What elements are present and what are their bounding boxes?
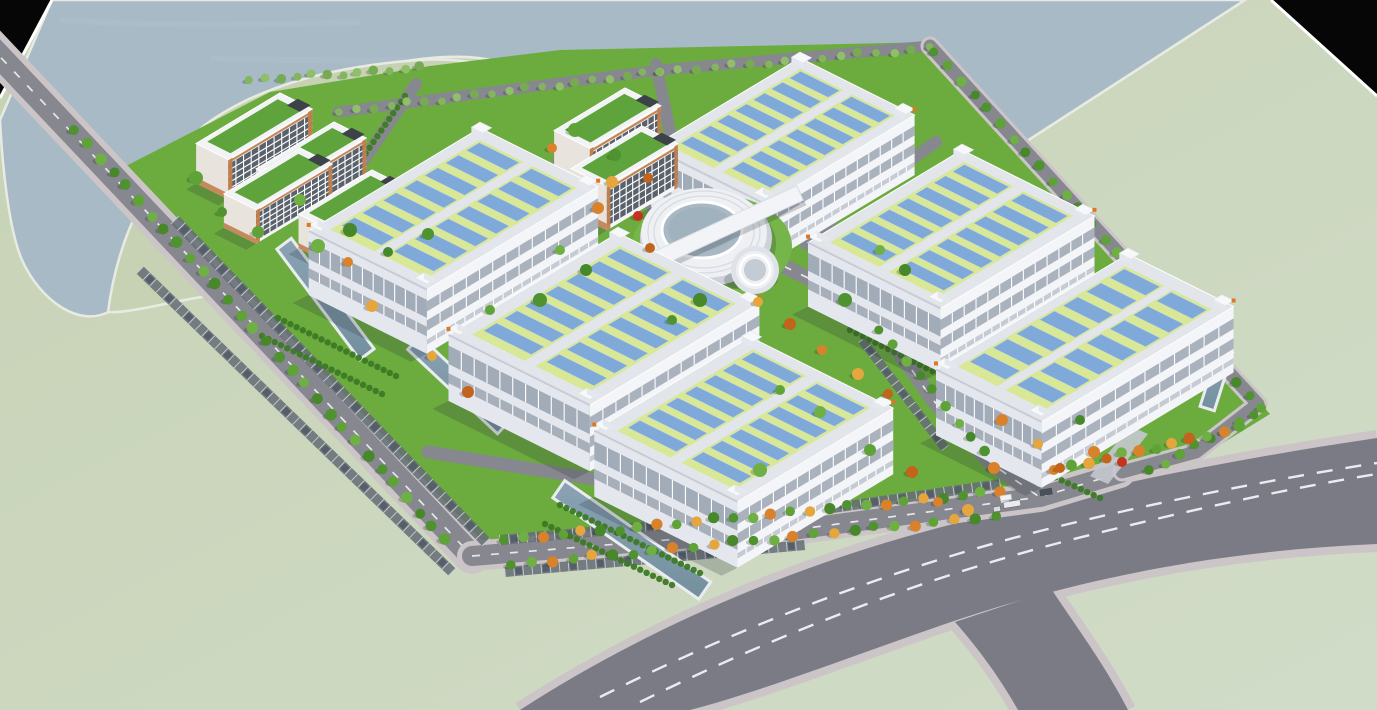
tree bbox=[350, 435, 361, 446]
tree bbox=[414, 61, 424, 71]
tree bbox=[335, 108, 343, 116]
tree bbox=[929, 48, 938, 57]
tree bbox=[940, 401, 951, 412]
tree bbox=[533, 293, 547, 307]
tree bbox=[1246, 391, 1255, 400]
tree bbox=[377, 464, 387, 474]
tree bbox=[595, 525, 606, 536]
tree bbox=[1249, 411, 1258, 420]
tree bbox=[547, 556, 558, 567]
tree bbox=[452, 93, 460, 101]
tower-orange-mark bbox=[446, 327, 450, 331]
tree bbox=[1161, 460, 1170, 469]
tree bbox=[667, 542, 678, 553]
tree bbox=[814, 406, 826, 418]
tower-orange-mark bbox=[1092, 208, 1096, 212]
tree bbox=[1152, 444, 1162, 454]
tree bbox=[261, 336, 271, 346]
tree bbox=[499, 535, 509, 545]
tree bbox=[1101, 235, 1111, 245]
tree bbox=[547, 143, 557, 153]
tree bbox=[1144, 465, 1154, 475]
tree bbox=[299, 377, 309, 387]
tree bbox=[824, 503, 835, 514]
tree bbox=[966, 432, 976, 442]
tree bbox=[711, 63, 719, 71]
tree bbox=[1202, 432, 1212, 442]
tree bbox=[787, 531, 798, 542]
tree bbox=[609, 149, 621, 161]
tree bbox=[307, 69, 316, 78]
tree bbox=[809, 529, 819, 539]
tree bbox=[906, 466, 918, 478]
tree bbox=[842, 500, 852, 510]
tree bbox=[1219, 426, 1230, 437]
tree bbox=[933, 497, 943, 507]
tree bbox=[645, 243, 655, 253]
scene-svg bbox=[0, 0, 1377, 710]
tree bbox=[383, 247, 393, 257]
tree bbox=[651, 519, 662, 530]
tree bbox=[607, 549, 618, 560]
tree bbox=[311, 239, 325, 253]
tree bbox=[592, 202, 604, 214]
tree bbox=[988, 462, 1000, 474]
tree bbox=[462, 386, 474, 398]
tree bbox=[294, 194, 306, 206]
tree bbox=[958, 491, 968, 501]
tree bbox=[906, 45, 915, 54]
tree bbox=[872, 49, 880, 57]
tree bbox=[819, 55, 827, 63]
tree bbox=[69, 125, 79, 135]
tree bbox=[869, 521, 879, 531]
aerial-render-industrial-park bbox=[0, 0, 1377, 710]
tree bbox=[570, 78, 579, 87]
tower-orange-mark bbox=[307, 223, 311, 227]
tree bbox=[673, 65, 681, 73]
tree bbox=[1083, 458, 1095, 470]
tree bbox=[646, 546, 656, 556]
tree bbox=[693, 293, 707, 307]
tree bbox=[171, 236, 183, 248]
tree bbox=[556, 82, 564, 90]
tree bbox=[1049, 177, 1058, 186]
tree bbox=[401, 492, 413, 504]
tree bbox=[639, 68, 647, 76]
tree bbox=[427, 351, 437, 361]
tree bbox=[1183, 433, 1195, 445]
tree bbox=[538, 83, 546, 91]
tree bbox=[1066, 460, 1077, 471]
tree bbox=[401, 65, 410, 74]
tower-orange-mark bbox=[891, 400, 895, 404]
tree bbox=[883, 389, 893, 399]
tree bbox=[709, 539, 719, 549]
tree bbox=[996, 414, 1008, 426]
tree bbox=[588, 76, 596, 84]
tree bbox=[312, 393, 323, 404]
tree bbox=[82, 138, 93, 149]
vehicle bbox=[993, 506, 1001, 512]
tree bbox=[402, 97, 410, 105]
tree bbox=[505, 87, 513, 95]
tree bbox=[775, 385, 785, 395]
tree bbox=[439, 533, 451, 545]
tree bbox=[236, 310, 247, 321]
tree bbox=[784, 318, 796, 330]
tree bbox=[223, 295, 233, 305]
tree bbox=[837, 52, 845, 60]
tree bbox=[343, 257, 353, 267]
tree bbox=[506, 560, 516, 570]
tree bbox=[217, 207, 227, 217]
tree bbox=[955, 419, 964, 428]
tree bbox=[899, 264, 911, 276]
tree bbox=[881, 499, 892, 510]
tree bbox=[927, 384, 937, 394]
tree bbox=[991, 511, 1001, 521]
tree bbox=[415, 509, 425, 519]
tower-orange-mark bbox=[592, 423, 596, 427]
tree bbox=[580, 264, 592, 276]
tree bbox=[729, 513, 739, 523]
tree bbox=[1033, 439, 1043, 449]
tree bbox=[643, 173, 653, 183]
tree bbox=[388, 476, 399, 487]
tree bbox=[353, 68, 362, 77]
tree bbox=[1116, 447, 1127, 458]
tree bbox=[916, 371, 925, 380]
tree bbox=[527, 557, 537, 567]
tree bbox=[120, 179, 131, 190]
tower-orange-mark bbox=[913, 107, 917, 111]
tree bbox=[133, 195, 145, 207]
tree bbox=[862, 500, 872, 510]
tree bbox=[979, 446, 990, 457]
tree bbox=[538, 532, 549, 543]
tree bbox=[569, 554, 579, 564]
tree bbox=[805, 506, 815, 516]
tree bbox=[765, 61, 773, 69]
tree bbox=[575, 525, 585, 535]
tree bbox=[287, 365, 299, 377]
tree bbox=[1233, 420, 1245, 432]
tree bbox=[337, 422, 347, 432]
tree bbox=[294, 73, 302, 81]
tree bbox=[769, 535, 779, 545]
tree bbox=[95, 153, 107, 165]
tree bbox=[1020, 147, 1030, 157]
tree bbox=[970, 513, 981, 524]
tree bbox=[1075, 415, 1085, 425]
tree bbox=[520, 82, 529, 91]
tree bbox=[692, 65, 701, 74]
tree bbox=[838, 293, 852, 307]
tree bbox=[891, 49, 899, 57]
tree bbox=[629, 550, 639, 560]
tree bbox=[667, 315, 677, 325]
tree bbox=[274, 352, 285, 363]
tree bbox=[889, 521, 899, 531]
tree bbox=[852, 368, 864, 380]
tree bbox=[918, 493, 928, 503]
tree bbox=[1102, 454, 1112, 464]
tree bbox=[1117, 457, 1127, 467]
tree bbox=[1055, 463, 1065, 473]
tree bbox=[829, 528, 839, 538]
tree bbox=[1010, 135, 1019, 144]
tree bbox=[158, 224, 169, 235]
tree bbox=[745, 59, 754, 68]
tree bbox=[420, 97, 429, 106]
tree bbox=[749, 536, 759, 546]
tree bbox=[388, 102, 396, 110]
tree bbox=[340, 71, 348, 79]
tree bbox=[708, 512, 719, 523]
tree bbox=[198, 266, 209, 277]
tree bbox=[962, 504, 974, 516]
tree bbox=[943, 60, 953, 70]
tree bbox=[606, 75, 614, 83]
tree bbox=[655, 68, 663, 76]
tree bbox=[689, 543, 699, 553]
tree bbox=[109, 167, 119, 177]
tower-orange-mark bbox=[934, 361, 938, 365]
tree bbox=[623, 72, 632, 81]
tree bbox=[426, 520, 437, 531]
tree bbox=[438, 98, 446, 106]
tree bbox=[956, 76, 967, 87]
tree bbox=[899, 496, 909, 506]
tree bbox=[888, 339, 898, 349]
tree bbox=[910, 521, 921, 532]
tree bbox=[343, 223, 357, 237]
tower-orange-mark bbox=[806, 235, 810, 239]
tree bbox=[1133, 445, 1145, 457]
tree bbox=[518, 532, 528, 542]
tree bbox=[369, 104, 378, 113]
tree bbox=[753, 463, 767, 477]
tree bbox=[147, 212, 157, 222]
tree bbox=[252, 226, 264, 238]
tree bbox=[1088, 446, 1100, 458]
tree bbox=[727, 535, 738, 546]
tree bbox=[874, 326, 883, 335]
tree bbox=[363, 450, 375, 462]
tree bbox=[1175, 449, 1186, 460]
tree bbox=[209, 278, 221, 290]
tree bbox=[632, 522, 642, 532]
tree bbox=[385, 67, 393, 75]
tree bbox=[691, 516, 701, 526]
tree bbox=[352, 105, 360, 113]
tree bbox=[470, 90, 479, 99]
tree bbox=[633, 211, 643, 221]
tree bbox=[672, 520, 682, 530]
tree bbox=[1166, 438, 1177, 449]
tree bbox=[982, 102, 992, 112]
tree bbox=[1256, 403, 1266, 413]
tree bbox=[864, 444, 876, 456]
tree bbox=[277, 74, 287, 84]
tree bbox=[189, 171, 203, 185]
tree bbox=[325, 409, 337, 421]
tree bbox=[785, 507, 795, 517]
tree bbox=[1231, 377, 1242, 388]
tree bbox=[555, 245, 565, 255]
tree bbox=[875, 245, 885, 255]
tree bbox=[748, 513, 758, 523]
tower-orange-mark bbox=[1232, 299, 1236, 303]
tree bbox=[245, 76, 253, 84]
tree bbox=[781, 57, 789, 65]
tree bbox=[1034, 160, 1045, 171]
tree bbox=[568, 123, 582, 137]
tree bbox=[901, 356, 912, 367]
tree bbox=[929, 517, 939, 527]
tree bbox=[366, 300, 378, 312]
tree bbox=[853, 48, 862, 57]
tree bbox=[1062, 190, 1072, 200]
tree bbox=[185, 253, 195, 263]
tree bbox=[971, 90, 980, 99]
tree bbox=[975, 487, 985, 497]
tree bbox=[261, 74, 270, 83]
tree bbox=[488, 90, 496, 98]
tree bbox=[817, 345, 827, 355]
tree bbox=[422, 228, 434, 240]
tree bbox=[727, 59, 735, 67]
tree bbox=[753, 297, 763, 307]
tree bbox=[606, 176, 618, 188]
tree bbox=[765, 509, 776, 520]
tree bbox=[368, 65, 378, 75]
tree bbox=[559, 530, 569, 540]
tree bbox=[247, 322, 259, 334]
tree bbox=[322, 70, 332, 80]
tree bbox=[949, 514, 959, 524]
tree bbox=[995, 118, 1006, 129]
tower-orange-mark bbox=[596, 179, 600, 183]
tree bbox=[615, 526, 625, 536]
tree bbox=[587, 550, 597, 560]
tree bbox=[485, 305, 495, 315]
tree bbox=[850, 525, 861, 536]
